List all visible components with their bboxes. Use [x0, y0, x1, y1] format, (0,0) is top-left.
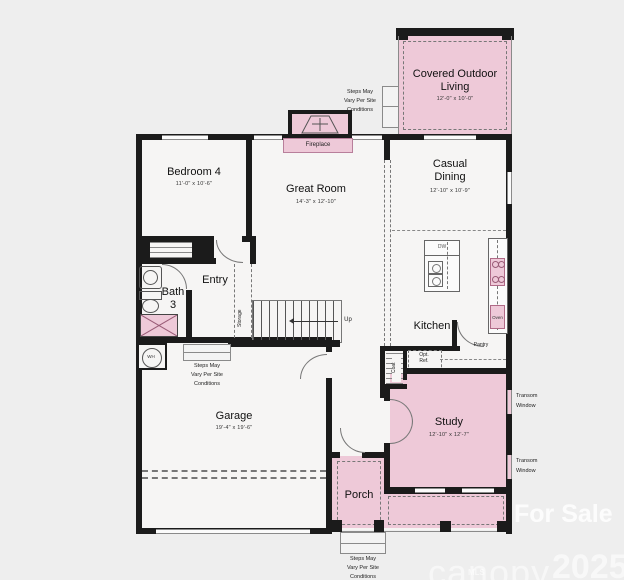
wall-study-left-lower [384, 443, 390, 489]
great-room-dims: 14'-3" x 12'-10" [260, 199, 372, 205]
sink-basin-2 [428, 274, 443, 287]
watermark-for-sale: For Sale [514, 500, 613, 529]
kitchen-label: Kitchen [406, 320, 458, 333]
entry-label: Entry [194, 274, 236, 287]
wall-stairs-bottom [228, 340, 340, 347]
sink-basin-1 [428, 261, 443, 274]
wall-porch-top-right [362, 452, 386, 458]
garage-dashed-line-2 [142, 477, 326, 479]
storage-label: Storage [238, 296, 247, 340]
great-room-label: Great Room [260, 183, 372, 196]
cased-opening-right [390, 160, 391, 346]
wall-bedroom-right [246, 134, 252, 242]
oven: Oven [490, 305, 505, 329]
garage-label: Garage [198, 410, 270, 423]
coat-label: Coat [392, 354, 401, 382]
porch-post-2 [374, 520, 384, 532]
col-side-right [511, 36, 512, 134]
col-sliding-door [424, 135, 476, 140]
wall-col-top [396, 28, 514, 36]
floor-plan: Up Storage Coat Pantry Opt. Ref. [0, 0, 624, 580]
dining-kitchen-dashed-line [392, 230, 506, 231]
garage-door-opening [156, 529, 310, 534]
col-post-right [502, 28, 514, 40]
water-heater-box: WH [137, 343, 167, 370]
kitchen-island: DW [424, 240, 460, 292]
bedroom-window [162, 135, 208, 140]
closet-bifold-door [150, 242, 192, 258]
garage-dashed-line-1 [142, 470, 326, 472]
wall-coat-right [403, 350, 407, 380]
wall-porch-top-left [332, 452, 340, 458]
garage-dims: 19'-4" x 19'-6" [198, 425, 270, 431]
bedroom4-dims: 11'-0" x 10'-6" [137, 181, 251, 187]
bath3-label: Bath 3 [158, 286, 188, 311]
pantry-label: Pantry [466, 343, 496, 349]
greatroom-window-left [254, 135, 282, 140]
up-arrow-line [294, 321, 338, 322]
porch-post-1 [332, 520, 342, 532]
transom-window-label-1: Transom Window [516, 392, 552, 412]
cooktop [490, 258, 505, 286]
closet-cap-left [142, 242, 150, 258]
steps-note-top: Steps May Vary Per Site Conditions [334, 88, 386, 114]
greatroom-window-right [352, 135, 382, 140]
kitchen-counter: Oven [488, 238, 508, 334]
cased-opening-left [384, 160, 385, 346]
wall-garage-right-top [326, 343, 332, 352]
steps-garage [183, 344, 231, 361]
closet-cap-right [192, 242, 214, 258]
steps-note-porch: Steps May Vary Per Site Conditions [334, 555, 392, 580]
porch-post-3 [440, 521, 451, 532]
fireplace-insert-icon [292, 114, 348, 134]
wall-greatroom-divider [384, 140, 390, 160]
watermark-year: 2025 [552, 548, 624, 580]
casual-dining-dims: 12'-10" x 10'-9" [407, 188, 493, 194]
casual-dining-label: Casual Dining [415, 158, 485, 183]
opt-ref-label: Opt. Ref. [408, 353, 440, 365]
wall-closet-bottom [136, 258, 216, 264]
covered-outdoor-living-dims: 12'-0" x 10'-0" [406, 96, 504, 102]
porch-label: Porch [338, 489, 380, 502]
steps-porch [340, 532, 386, 554]
wall-study-top [404, 368, 506, 374]
porch-post-4 [497, 521, 508, 532]
wall-bath-entry-top [186, 258, 192, 264]
shower [140, 314, 178, 337]
transom-window-label-2: Transom Window [516, 457, 552, 477]
study-dims: 12'-10" x 12'-7" [411, 432, 487, 438]
covered-outdoor-living-label: Covered Outdoor Living [406, 68, 504, 93]
steps-note-garage: Steps May Vary Per Site Conditions [172, 362, 242, 388]
study-window-right [462, 488, 494, 493]
fireplace-label: Fireplace [284, 142, 352, 149]
study-label: Study [420, 416, 478, 429]
dishwasher: DW [425, 241, 459, 256]
opt-ref-dashed-line [440, 359, 506, 360]
transom-window-1 [507, 390, 512, 414]
shower-x-icon [141, 315, 177, 336]
wall-entry-right [250, 236, 256, 264]
study-window-left [415, 488, 445, 493]
oven-label: Oven [491, 315, 504, 320]
transom-window-2 [507, 455, 512, 479]
watermark-brand: canopy [428, 552, 550, 580]
fireplace-label-box: Fireplace [283, 138, 353, 153]
toilet-bowl [142, 299, 159, 313]
water-heater-label: WH [142, 354, 160, 359]
dishwasher-label: DW [425, 245, 459, 251]
up-arrow-head [289, 318, 294, 324]
island-dashed-line [447, 242, 448, 289]
bedroom4-label: Bedroom 4 [137, 166, 251, 179]
watermark-mls: MLS [468, 568, 485, 577]
up-label: Up [341, 317, 355, 324]
dining-window [507, 172, 512, 204]
